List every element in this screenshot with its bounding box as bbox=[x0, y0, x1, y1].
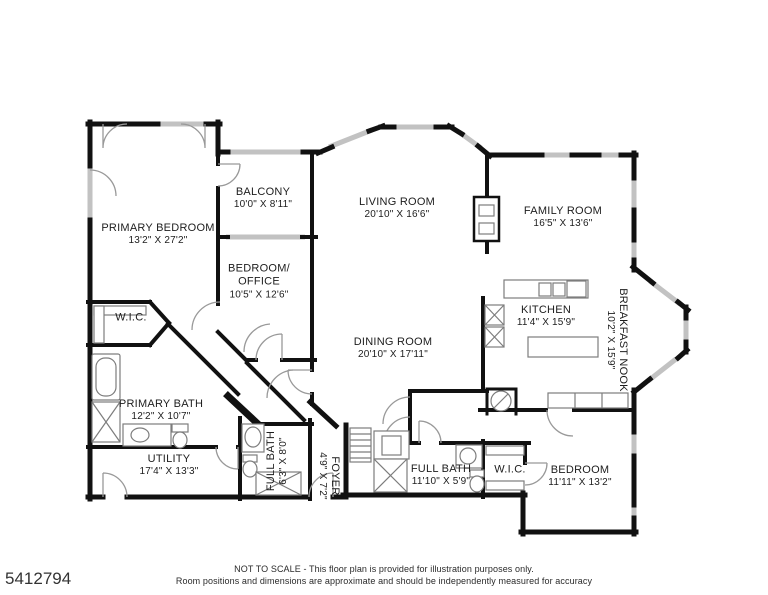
room-name: W.I.C. bbox=[115, 311, 146, 324]
room-name: PRIMARY BATH bbox=[119, 398, 203, 411]
floor-plan-drawing bbox=[0, 0, 768, 595]
room-dims: 13'2" X 27'2" bbox=[101, 236, 214, 248]
room-label-utility: UTILITY 17'4" X 13'3" bbox=[139, 453, 198, 479]
room-label-kitchen: KITCHEN 11'4" X 15'9" bbox=[517, 304, 575, 330]
room-name: BREAKFAST NOOK bbox=[615, 288, 628, 392]
room-label-balcony: BALCONY 10'0" X 8'11" bbox=[234, 186, 292, 212]
fireplace bbox=[474, 197, 499, 241]
room-label-foyer: FOYER 4'9" X 7'2" bbox=[315, 452, 341, 500]
room-name: UTILITY bbox=[139, 453, 198, 466]
room-label-full-bath: FULL BATH 11'10" X 5'9" bbox=[411, 463, 471, 489]
room-label-breakfast-nook: BREAKFAST NOOK 10'2" X 15'9" bbox=[603, 288, 629, 392]
room-name: BEDROOM bbox=[548, 464, 611, 477]
room-dims: 20'10" X 16'6" bbox=[359, 210, 435, 222]
room-label-family-room: FAMILY ROOM 16'5" X 13'6" bbox=[524, 205, 602, 231]
room-dims: 17'4" X 13'3" bbox=[139, 467, 198, 479]
room-name: FULL BATH bbox=[265, 431, 278, 491]
room-label-primary-bedroom: PRIMARY BEDROOM 13'2" X 27'2" bbox=[101, 222, 214, 248]
room-dims: 11'11" X 13'2" bbox=[548, 478, 611, 490]
room-dims: 16'5" X 13'6" bbox=[524, 219, 602, 231]
room-name: FOYER bbox=[327, 452, 340, 500]
room-label-wic-bedroom: W.I.C. bbox=[494, 463, 525, 476]
disclaimer-line-1: NOT TO SCALE - This floor plan is provid… bbox=[0, 564, 768, 574]
room-name: FULL BATH bbox=[411, 463, 471, 476]
room-name: DINING ROOM bbox=[354, 336, 433, 349]
disclaimer-line-2: Room positions and dimensions are approx… bbox=[0, 576, 768, 586]
room-label-living-room: LIVING ROOM 20'10" X 16'6" bbox=[359, 196, 435, 222]
room-label-dining-room: DINING ROOM 20'10" X 17'11" bbox=[354, 336, 433, 362]
room-name: PRIMARY BEDROOM bbox=[101, 222, 214, 235]
room-dims: 12'2" X 10'7" bbox=[119, 412, 203, 424]
room-label-bedroom-office: BEDROOM/ OFFICE 10'5" X 12'6" bbox=[228, 263, 290, 302]
room-name: BEDROOM/ OFFICE bbox=[228, 263, 290, 290]
room-dims: 4'9" X 7'2" bbox=[315, 452, 327, 500]
room-name: LIVING ROOM bbox=[359, 196, 435, 209]
room-dims: 6'3" X 8'0" bbox=[279, 431, 291, 491]
room-dims: 10'2" X 15'9" bbox=[603, 288, 615, 392]
room-dims: 20'10" X 17'11" bbox=[354, 350, 433, 362]
room-dims: 10'0" X 8'11" bbox=[234, 200, 292, 212]
room-dims: 11'4" X 15'9" bbox=[517, 318, 575, 330]
room-name: KITCHEN bbox=[517, 304, 575, 317]
room-label-bedroom: BEDROOM 11'11" X 13'2" bbox=[548, 464, 611, 490]
room-name: FAMILY ROOM bbox=[524, 205, 602, 218]
room-name: BALCONY bbox=[234, 186, 292, 199]
floor-plan-page: PRIMARY BEDROOM 13'2" X 27'2" BALCONY 10… bbox=[0, 0, 768, 595]
room-dims: 11'10" X 5'9" bbox=[411, 477, 471, 489]
room-dims: 10'5" X 12'6" bbox=[228, 289, 290, 301]
room-label-full-bath-small: FULL BATH 6'3" X 8'0" bbox=[265, 431, 291, 491]
room-label-primary-bath: PRIMARY BATH 12'2" X 10'7" bbox=[119, 398, 203, 424]
room-name: W.I.C. bbox=[494, 463, 525, 476]
room-label-wic-primary: W.I.C. bbox=[115, 311, 146, 324]
